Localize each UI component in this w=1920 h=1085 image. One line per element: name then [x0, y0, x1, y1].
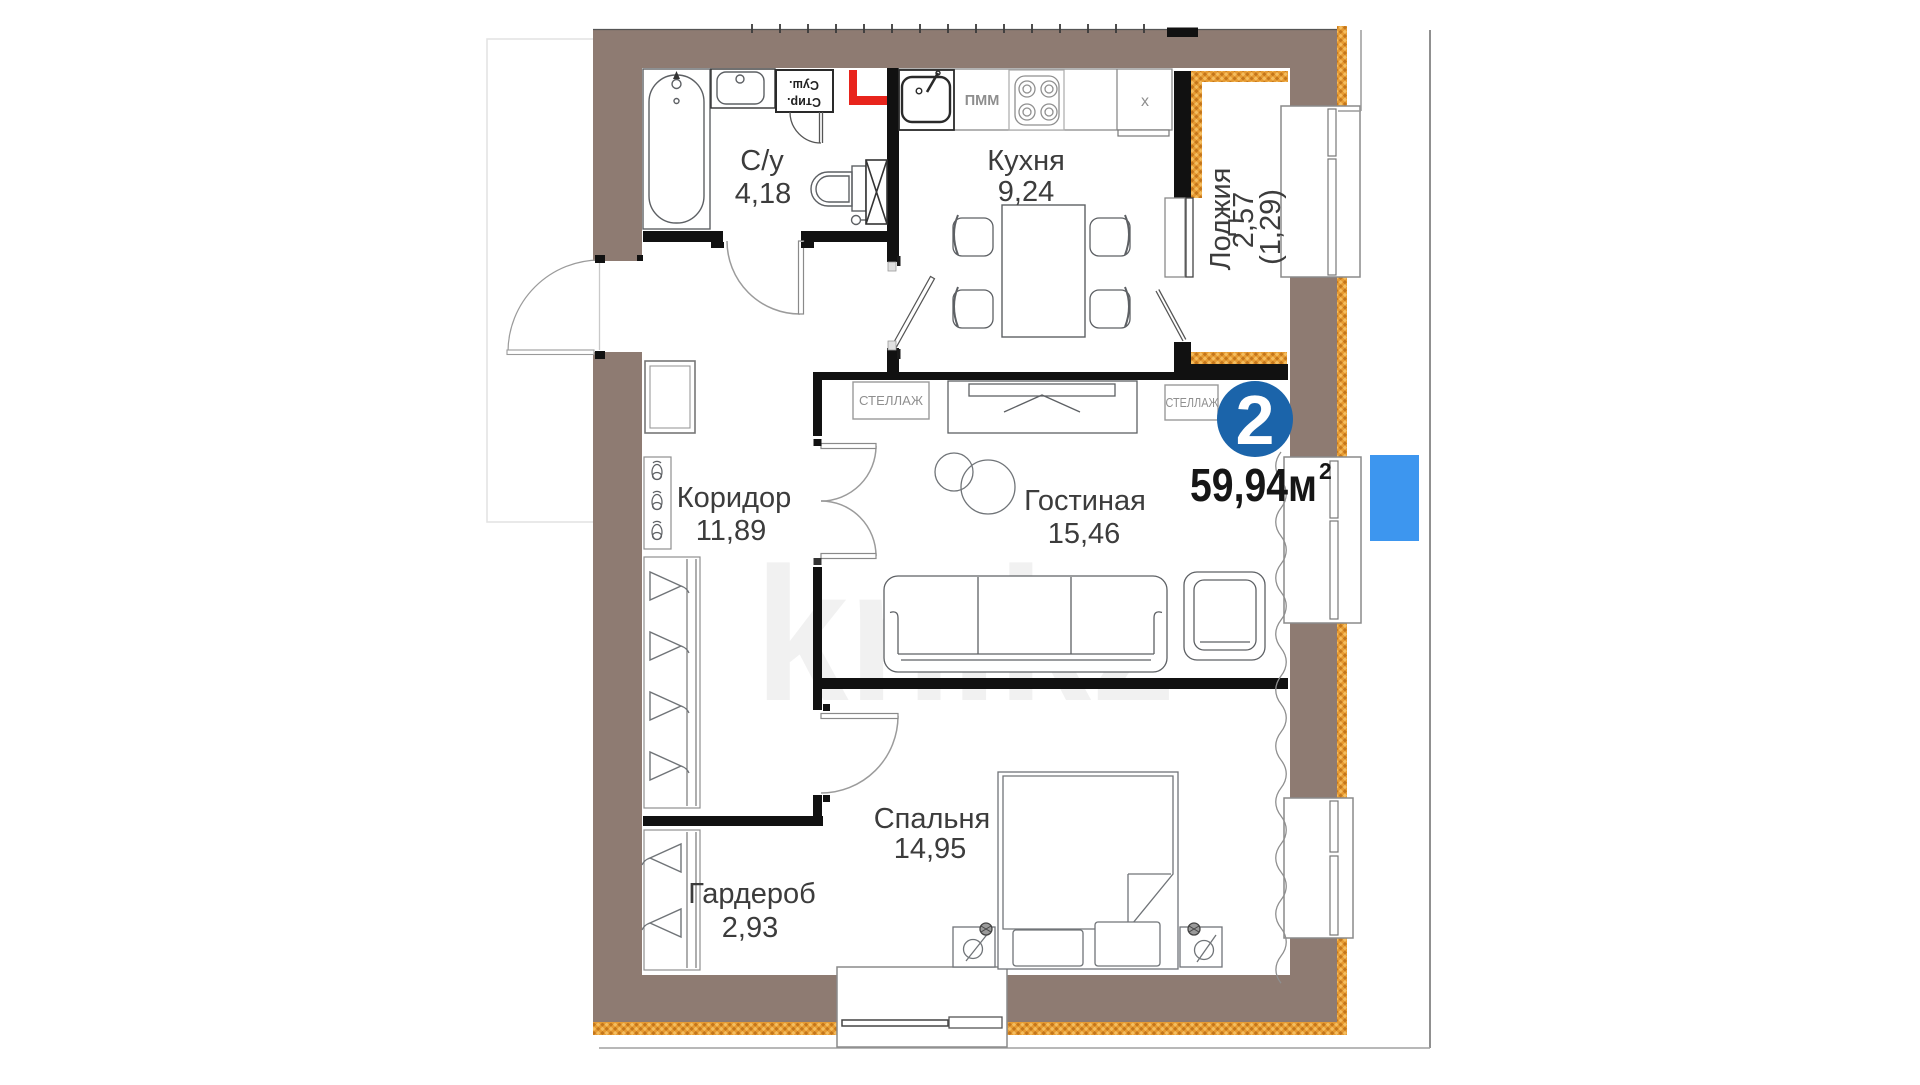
svg-text:14,95: 14,95: [894, 833, 967, 865]
svg-text:x: x: [1141, 93, 1149, 110]
svg-text:11,89: 11,89: [696, 515, 766, 547]
svg-text:Стир.: Стир.: [787, 95, 821, 109]
svg-text:(1,29): (1,29): [1255, 189, 1287, 265]
svg-text:СТЕЛЛАЖ: СТЕЛЛАЖ: [859, 394, 923, 408]
svg-text:Суш.: Суш.: [789, 78, 819, 92]
svg-text:4,18: 4,18: [735, 178, 791, 210]
svg-text:Спальня: Спальня: [874, 803, 991, 835]
svg-text:2,93: 2,93: [722, 912, 778, 944]
svg-text:ПММ: ПММ: [965, 93, 1000, 109]
svg-text:Гостиная: Гостиная: [1024, 485, 1146, 517]
svg-text:Коридор: Коридор: [677, 482, 792, 514]
svg-text:9,24: 9,24: [998, 176, 1054, 208]
svg-text:СТЕЛЛАЖ: СТЕЛЛАЖ: [1166, 396, 1219, 410]
svg-text:2: 2: [1319, 458, 1332, 484]
svg-text:2: 2: [1236, 381, 1275, 459]
svg-text:С/у: С/у: [740, 145, 784, 177]
svg-text:59,94м: 59,94м: [1190, 459, 1317, 511]
svg-text:Гардероб: Гардероб: [688, 878, 816, 910]
svg-text:Кухня: Кухня: [987, 145, 1065, 177]
svg-text:15,46: 15,46: [1048, 518, 1121, 550]
